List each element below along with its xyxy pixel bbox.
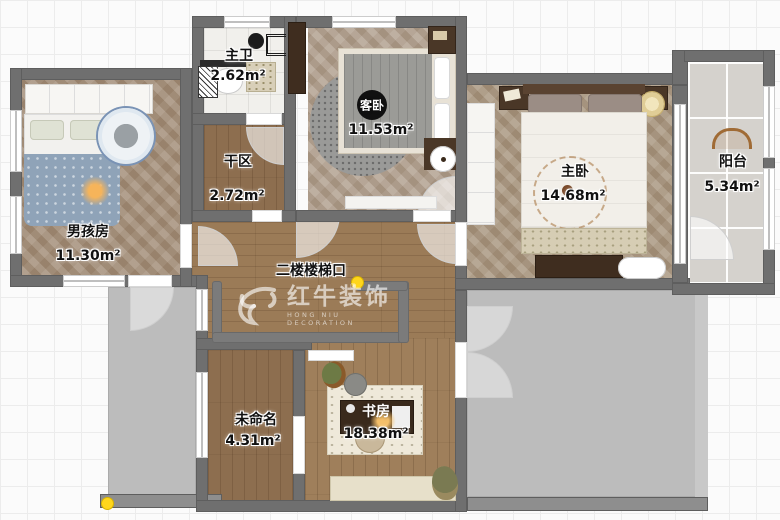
room-area-study: 18.38m²: [343, 426, 408, 442]
room-label-master-bedroom: 主卧: [561, 161, 589, 181]
window-master-balcony: [674, 104, 686, 264]
room-label-boys-room: 男孩房: [67, 221, 109, 241]
window: [763, 168, 775, 250]
void-right-edge-strip: [695, 290, 708, 497]
wall: [10, 68, 192, 80]
master-pillow: [588, 94, 642, 114]
window: [196, 289, 208, 331]
stair-railing-bottom: [212, 332, 408, 343]
door-opening: [180, 224, 192, 268]
master-bench-white[interactable]: [618, 257, 666, 279]
room-label-study: 书房: [362, 401, 390, 421]
room-area-guest-bedroom: 11.53m²: [348, 122, 413, 138]
boys-rug[interactable]: [98, 108, 154, 164]
guest-bed-pillow: [434, 57, 450, 99]
bull-logo-icon: [228, 284, 282, 328]
master-wardrobe[interactable]: [467, 103, 495, 225]
bath-drying-rack: [266, 34, 286, 56]
window: [332, 16, 396, 28]
door-opening: [413, 210, 451, 222]
wall: [684, 50, 775, 62]
watermark-subtitle: HONG NIU DECORATION: [287, 311, 398, 327]
window: [224, 16, 270, 28]
room-label-unnamed: 未命名: [235, 409, 277, 429]
room-area-master-bedroom: 14.68m²: [540, 188, 605, 204]
room-label-dry-area: 干区: [224, 151, 252, 171]
wall: [196, 500, 467, 512]
watermark-registered-mark: ®: [349, 282, 357, 291]
wall: [10, 68, 22, 287]
room-area-boys-room: 11.30m²: [55, 248, 120, 264]
guest-wardrobe[interactable]: [288, 22, 306, 94]
void-right-bottom-edge: [467, 497, 708, 511]
master-bench-blanket: [521, 228, 647, 254]
window: [10, 196, 22, 254]
room-label-master-bath: 主卫: [225, 45, 253, 65]
window: [10, 110, 22, 172]
boys-lamp-glow: [80, 176, 110, 206]
master-headboard: [523, 84, 645, 94]
room-label-guest-bedroom: 客卧: [360, 97, 384, 114]
room-label-balcony: 阳台: [719, 151, 747, 171]
watermark-brand-text: 红牛装饰: [287, 284, 391, 310]
door-opening: [246, 113, 282, 125]
guest-dresser[interactable]: [345, 196, 437, 209]
door-opening: [128, 275, 172, 287]
marker-dot-bottom-left[interactable]: [102, 498, 113, 509]
room-area-balcony: 5.34m²: [704, 179, 759, 195]
brand-watermark: 红牛装饰 ® HONG NIU DECORATION: [228, 284, 398, 328]
window: [63, 275, 125, 287]
wall: [455, 278, 690, 290]
floor-plan: 主卫 2.62m² 干区 2.72m² 客卧 11.53m² 男孩房 11.30…: [0, 0, 780, 520]
study-chair[interactable]: [344, 373, 367, 396]
door-opening-hall-study: [308, 350, 354, 361]
boys-bed-pillow: [30, 120, 64, 140]
guest-table-dot: [441, 157, 446, 162]
window: [196, 372, 208, 458]
guest-nightstand-item: [433, 31, 447, 40]
door-opening: [252, 210, 282, 222]
door-opening: [455, 222, 467, 266]
master-pillow: [528, 94, 582, 114]
study-plant-corner: [432, 466, 458, 500]
room-area-master-bath: 2.62m²: [210, 68, 265, 84]
room-area-unnamed: 4.31m²: [225, 433, 280, 449]
door-opening: [293, 416, 305, 474]
master-dresser[interactable]: [535, 255, 623, 278]
door-opening: [455, 342, 467, 398]
wall: [672, 283, 775, 295]
room-area-dry-area: 2.72m²: [209, 188, 264, 204]
room-label-stair-landing: 二楼楼梯口: [276, 260, 346, 280]
study-desk-dot: [346, 404, 355, 413]
window: [763, 86, 775, 158]
